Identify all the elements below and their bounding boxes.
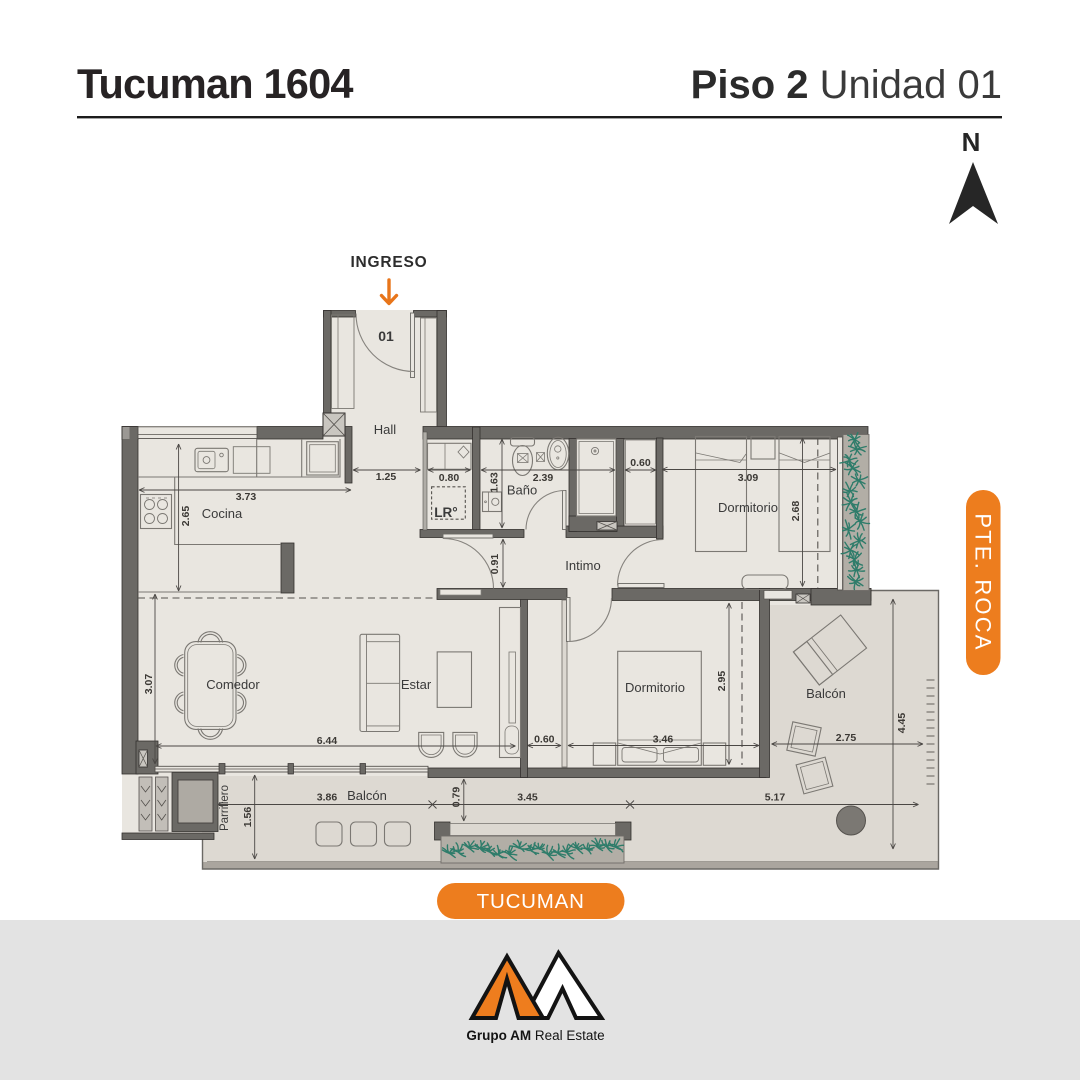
svg-text:LR°: LR° (434, 505, 457, 520)
svg-text:3.46: 3.46 (653, 734, 674, 746)
svg-text:N: N (962, 127, 981, 157)
svg-text:Piso 2 Unidad 01: Piso 2 Unidad 01 (691, 63, 1002, 107)
svg-text:Estar: Estar (401, 677, 432, 692)
svg-text:Grupo AM Real Estate: Grupo AM Real Estate (466, 1028, 604, 1043)
svg-text:0.80: 0.80 (439, 472, 460, 484)
svg-text:2.95: 2.95 (716, 671, 728, 692)
svg-text:Balcón: Balcón (806, 686, 846, 701)
svg-text:1.63: 1.63 (489, 472, 501, 493)
svg-text:Tucuman 1604: Tucuman 1604 (77, 60, 353, 107)
svg-text:1.25: 1.25 (376, 471, 397, 483)
svg-text:2.65: 2.65 (180, 506, 192, 527)
svg-text:5.17: 5.17 (765, 792, 786, 804)
svg-text:PTE. ROCA: PTE. ROCA (971, 513, 996, 651)
svg-text:Intimo: Intimo (565, 558, 600, 573)
svg-text:3.07: 3.07 (143, 674, 155, 695)
svg-text:Dormitorio: Dormitorio (718, 500, 778, 515)
svg-text:2.75: 2.75 (836, 732, 857, 744)
svg-text:3.09: 3.09 (738, 472, 759, 484)
svg-text:6.44: 6.44 (317, 735, 338, 747)
svg-text:TUCUMAN: TUCUMAN (477, 890, 585, 913)
svg-text:Comedor: Comedor (206, 677, 260, 692)
svg-text:Parrillero: Parrillero (219, 785, 231, 831)
svg-text:0.60: 0.60 (534, 734, 555, 746)
svg-text:1.56: 1.56 (242, 807, 254, 828)
svg-text:01: 01 (378, 328, 394, 344)
svg-text:Dormitorio: Dormitorio (625, 680, 685, 695)
svg-text:Cocina: Cocina (202, 506, 243, 521)
svg-text:4.45: 4.45 (896, 713, 908, 734)
svg-text:Hall: Hall (374, 422, 397, 437)
svg-text:Baño: Baño (507, 483, 537, 498)
svg-text:2.68: 2.68 (790, 501, 802, 522)
svg-text:0.91: 0.91 (489, 554, 501, 575)
svg-text:3.73: 3.73 (236, 491, 257, 503)
svg-text:INGRESO: INGRESO (350, 254, 427, 271)
svg-text:3.45: 3.45 (517, 792, 538, 804)
svg-text:0.60: 0.60 (630, 457, 651, 469)
svg-text:0.79: 0.79 (451, 787, 463, 808)
svg-text:3.86: 3.86 (317, 792, 338, 804)
svg-text:Balcón: Balcón (347, 788, 387, 803)
